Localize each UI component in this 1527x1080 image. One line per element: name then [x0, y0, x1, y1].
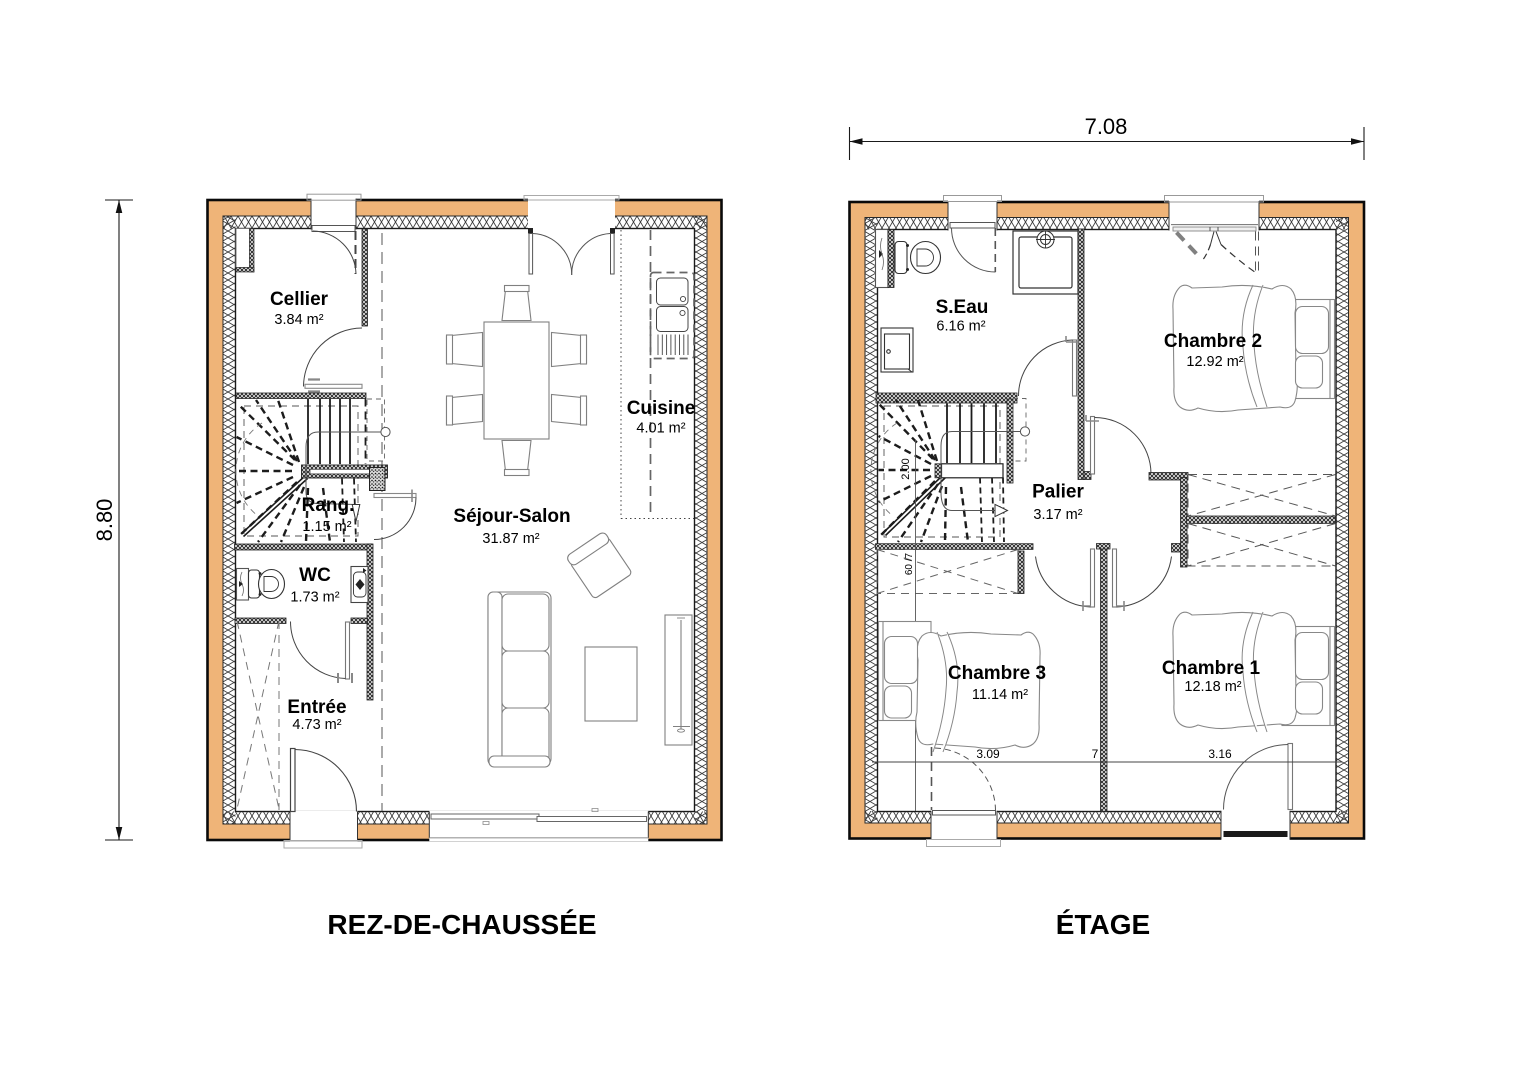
svg-text:Cellier: Cellier [270, 289, 329, 310]
svg-text:Palier: Palier [1032, 482, 1084, 503]
svg-text:WC: WC [299, 565, 331, 586]
svg-text:1.15 m²: 1.15 m² [302, 519, 351, 535]
svg-text:11.14 m²: 11.14 m² [972, 687, 1028, 703]
svg-text:7.08: 7.08 [1085, 114, 1128, 139]
svg-text:Cuisine: Cuisine [627, 398, 696, 419]
svg-text:1.73 m²: 1.73 m² [290, 590, 339, 606]
svg-text:12.92 m²: 12.92 m² [1186, 354, 1243, 370]
svg-text:ÉTAGE: ÉTAGE [1056, 909, 1150, 940]
svg-text:Rang.: Rang. [302, 495, 355, 516]
svg-text:REZ-DE-CHAUSSÉE: REZ-DE-CHAUSSÉE [327, 909, 596, 940]
svg-text:31.87 m²: 31.87 m² [482, 531, 539, 547]
svg-text:12.18 m²: 12.18 m² [1184, 679, 1241, 695]
svg-text:Séjour-Salon: Séjour-Salon [453, 506, 570, 527]
svg-text:3.17 m²: 3.17 m² [1033, 507, 1082, 523]
svg-text:60 /7: 60 /7 [904, 552, 915, 575]
svg-text:3.84 m²: 3.84 m² [274, 312, 323, 328]
svg-text:S.Eau: S.Eau [936, 297, 989, 318]
svg-text:Entrée: Entrée [287, 697, 346, 718]
svg-text:2.00: 2.00 [900, 458, 912, 479]
svg-text:Chambre 3: Chambre 3 [948, 663, 1046, 684]
svg-text:7: 7 [1092, 747, 1099, 761]
svg-text:4.73 m²: 4.73 m² [292, 717, 341, 733]
svg-text:3.16: 3.16 [1208, 747, 1232, 761]
svg-text:Chambre 1: Chambre 1 [1162, 658, 1261, 679]
svg-text:6.16 m²: 6.16 m² [936, 319, 985, 335]
svg-text:Chambre 2: Chambre 2 [1164, 331, 1262, 352]
svg-text:8.80: 8.80 [92, 499, 117, 542]
svg-text:4.01 m²: 4.01 m² [636, 421, 685, 437]
